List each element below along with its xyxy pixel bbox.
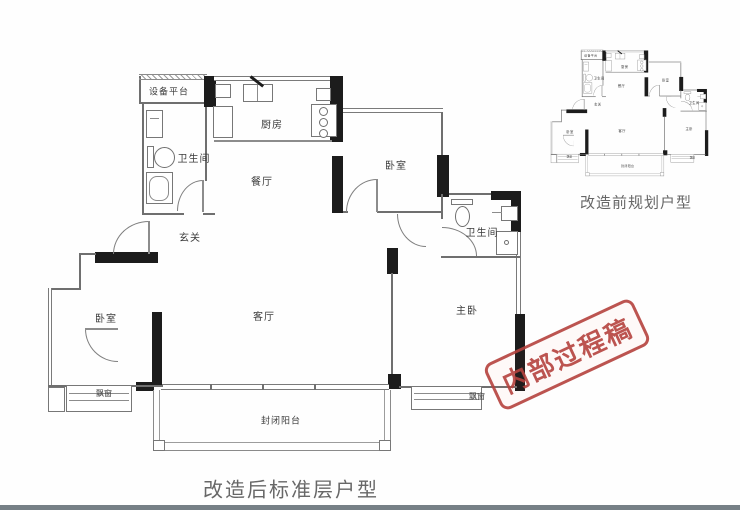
load-bearing-wall <box>152 312 162 385</box>
door-arc <box>113 221 149 254</box>
sink-divider <box>257 85 258 101</box>
door-arc <box>177 180 203 211</box>
room-label-master: 主卧 <box>456 307 478 317</box>
caption-main: 改造后标准层户型 <box>203 474 379 503</box>
wall <box>582 96 596 97</box>
room-label-bedroom-left: 卧室 <box>566 131 573 134</box>
toilet-bowl <box>685 94 690 101</box>
wall <box>139 76 141 104</box>
room-label-bedroom-top: 卧室 <box>385 162 407 172</box>
room-label-bay-right: 飘窗 <box>469 393 485 401</box>
balcony-end-box <box>379 440 391 451</box>
wall <box>561 110 567 111</box>
room-label-living: 客厅 <box>618 130 625 133</box>
balcony-end-box <box>153 440 165 451</box>
sink-fixture <box>501 206 518 221</box>
bedroom-left-window <box>551 121 552 154</box>
room-label-bathroom-left: 卫生间 <box>178 155 211 165</box>
sink-fixture <box>583 62 589 71</box>
load-bearing-wall <box>585 130 588 154</box>
door-arc <box>572 99 584 110</box>
bottom-edge-bar <box>0 505 740 510</box>
counter-box <box>639 54 644 58</box>
room-label-equipment-platform: 设备平台 <box>584 54 597 57</box>
room-label-bay-left: 飘窗 <box>96 390 112 398</box>
room-label-bathroom-left: 卫生间 <box>594 77 605 80</box>
counter-box <box>215 84 231 98</box>
main-floor-plan: 设备平台 卫生间 厨房 餐厅 玄关 卧室 卫生间 卧室 客厅 主卧 飘窗 飘窗 … <box>535 25 740 196</box>
door-leaf <box>202 180 204 212</box>
room-label-bathroom-right: 卫生间 <box>466 229 499 239</box>
wall <box>603 60 604 86</box>
wall <box>664 116 665 151</box>
room-label-living: 客厅 <box>253 313 275 323</box>
burner <box>319 129 328 138</box>
shower-drain <box>504 240 509 245</box>
wall <box>48 288 80 290</box>
wall <box>681 111 707 112</box>
wall <box>139 102 207 104</box>
wall <box>578 154 589 155</box>
room-label-bedroom-left: 卧室 <box>95 315 117 325</box>
fridge-box <box>213 106 233 138</box>
sink-fixture <box>700 94 706 99</box>
wall <box>581 59 603 60</box>
fridge-box <box>605 61 612 72</box>
burner <box>319 118 328 127</box>
wall <box>203 213 215 215</box>
wall <box>142 103 144 215</box>
toilet-bowl <box>586 74 593 81</box>
door-leaf <box>376 179 378 212</box>
bathtub-inner <box>584 84 591 92</box>
counter-box <box>316 88 331 101</box>
door-leaf <box>563 135 574 136</box>
sink-fixture <box>146 110 163 138</box>
wall <box>681 63 682 78</box>
bathtub-inner <box>149 176 169 201</box>
kitchen-sink-fixture <box>243 84 273 102</box>
wall <box>441 256 520 258</box>
room-label-entry: 玄关 <box>594 103 601 106</box>
shower-drain <box>701 105 703 107</box>
wall <box>441 112 443 157</box>
wall <box>377 211 441 213</box>
bay-window-line <box>69 400 129 401</box>
door-arc <box>346 179 377 212</box>
burner <box>640 61 643 64</box>
faucet-mark <box>492 212 502 213</box>
room-label-dining: 餐厅 <box>618 85 625 88</box>
wall <box>205 103 207 181</box>
door-arc <box>649 85 659 96</box>
toilet-bowl <box>154 147 175 168</box>
door-arc <box>397 214 426 247</box>
balcony-end-box <box>585 172 589 176</box>
bay-window-end <box>551 155 557 163</box>
door-arc <box>666 97 676 108</box>
bedroom-window <box>648 61 681 63</box>
load-bearing-wall <box>387 248 398 274</box>
kitchen-window <box>606 50 645 52</box>
room-label-bedroom-top: 卧室 <box>662 79 669 82</box>
bedroom-left-window <box>48 288 52 387</box>
wall <box>561 110 562 122</box>
room-label-equipment-platform: 设备平台 <box>149 88 189 97</box>
kitchen-counter-line <box>606 72 645 73</box>
wall <box>694 154 706 155</box>
room-label-dining: 餐厅 <box>251 178 273 188</box>
toilet-bowl <box>455 206 470 227</box>
load-bearing-wall <box>705 130 708 156</box>
load-bearing-wall <box>645 77 649 96</box>
kitchen-counter-line <box>214 140 332 142</box>
mini-plan: 设备平台 卫生间 厨房 餐厅 玄关 卧室 卫生间 卧室 客厅 主卧 飘窗 飘窗 … <box>551 50 711 178</box>
load-bearing-wall <box>332 156 343 213</box>
equipment-platform-edge <box>581 50 603 52</box>
room-label-entry: 玄关 <box>179 234 201 244</box>
door-leaf <box>85 328 118 330</box>
balcony-end-box <box>660 172 664 176</box>
door-arc <box>85 329 118 362</box>
bay-window-end <box>48 387 65 412</box>
burner <box>640 68 643 71</box>
counter-box <box>606 53 611 58</box>
room-label-bay-left: 飘窗 <box>567 156 572 159</box>
wall <box>130 385 163 387</box>
room-label-bathroom-right: 卫生间 <box>689 102 700 105</box>
room-label-kitchen: 厨房 <box>261 121 283 131</box>
wall <box>551 121 562 122</box>
load-bearing-wall <box>437 155 449 197</box>
faucet-mark <box>150 118 159 119</box>
wall <box>449 193 495 195</box>
wall <box>79 253 81 290</box>
wall <box>391 273 393 376</box>
toilet-tank <box>451 199 473 205</box>
room-label-balcony: 封闭阳台 <box>621 165 634 168</box>
wall <box>681 90 682 98</box>
wall <box>79 253 96 255</box>
room-label-bay-right: 飘窗 <box>690 157 695 160</box>
burner <box>319 107 328 116</box>
toilet-tank <box>147 146 154 168</box>
wall <box>142 213 184 215</box>
kitchen-window <box>214 76 332 81</box>
door-leaf <box>148 221 150 254</box>
bedroom-window <box>343 108 443 113</box>
door-arc <box>563 135 574 146</box>
room-label-balcony: 封闭阳台 <box>261 417 301 426</box>
wall <box>441 194 443 219</box>
burner <box>640 65 643 68</box>
room-label-master: 主卧 <box>685 128 692 131</box>
equipment-platform-edge <box>139 74 207 80</box>
room-label-kitchen: 厨房 <box>621 66 628 69</box>
wall <box>602 96 606 97</box>
floor-plan-page: 设备平台 卫生间 厨房 餐厅 玄关 卧室 卫生间 卧室 客厅 主卧 飘窗 飘窗 … <box>0 0 740 510</box>
